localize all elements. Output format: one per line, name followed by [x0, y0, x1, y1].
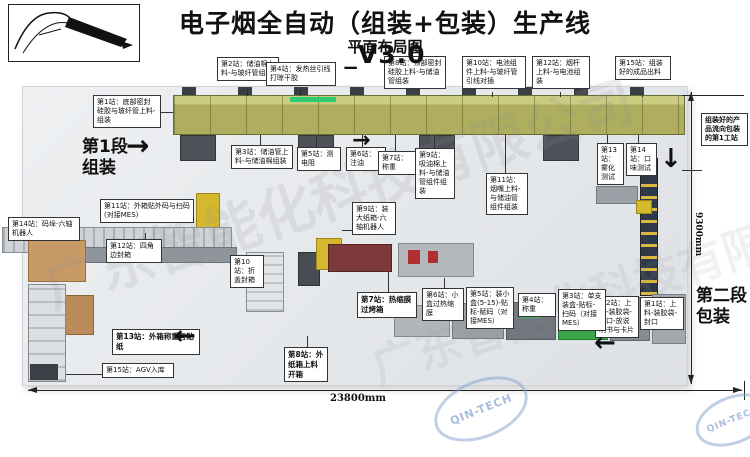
dimension-arrowhead-down: [688, 375, 694, 384]
connector-line: [66, 374, 103, 375]
inspection-red-unit: [408, 250, 420, 264]
connector-line: [607, 135, 608, 143]
connector-line: [395, 135, 396, 151]
taste-test-unit: [636, 200, 652, 214]
width-dimension-label: 23800mm: [330, 393, 386, 404]
assembly-station-label-13: 第13站：雾化测试: [597, 143, 624, 185]
hand-pen-logo: [8, 4, 140, 62]
six-axis-robot: [196, 193, 220, 231]
flow-note: 组装好的产品流向包装的第1工站: [701, 113, 748, 146]
connector-line: [638, 135, 639, 143]
packaging-station-label-7: 第7站：热缩膜过烤箱: [357, 292, 417, 318]
flow-arrow-left-icon: ←: [174, 323, 196, 349]
control-cabinet: [543, 135, 579, 161]
packaging-station-label-15: 第15站：AGV入库: [102, 363, 174, 378]
packaging-station-label-4: 第4站：称重: [518, 293, 556, 317]
inspection-red-unit: [428, 251, 438, 263]
flow-arrow-down-icon: ↓: [660, 146, 682, 172]
stage-1-line2: 组装: [82, 158, 128, 179]
dimension-arrowhead-left: [28, 387, 37, 393]
connector-line: [161, 112, 173, 113]
pen-sketch-icon: [9, 5, 137, 59]
connector-line: [560, 92, 561, 97]
stage-2-line2: 包装: [696, 307, 747, 328]
height-dimension-line: [691, 92, 692, 384]
packaging-station-label-12: 第12站：四角边封箱: [106, 239, 162, 263]
packaging-station-label-10: 第10站：折盖封箱: [230, 255, 264, 288]
flow-arrow-right-icon: →: [352, 130, 370, 152]
width-dimension-line: [28, 390, 742, 391]
qin-tech-logo-watermark: QIN-TECH: [688, 383, 750, 457]
packaging-station-label-8: 第8站：外纸箱上料开箱: [284, 347, 328, 382]
assembly-station-label-5: 第5站：测电阻: [297, 147, 341, 171]
assembly-station-label-11: 第11站：烟嘴上料-与储油管组件组装: [486, 173, 528, 215]
connector-line: [642, 93, 643, 97]
assembly-station-label-9: 第9站：吸油棉上料-与储油管组件组装: [415, 148, 455, 199]
assembly-station-label-14: 第14站：口味测试: [626, 143, 657, 176]
flow-arrow-right-icon: →: [126, 132, 149, 160]
dimension-arrowhead-up: [688, 92, 694, 101]
connector-line: [505, 135, 506, 173]
test-station-machine: [596, 186, 638, 204]
connector-line: [434, 135, 435, 148]
connector-line: [492, 92, 493, 97]
packaging-station-label-11: 第11站：外箱贴外码与扫码(对接MES): [100, 199, 194, 223]
dimension-tick: [682, 95, 744, 96]
control-cabinet: [180, 135, 216, 161]
assembly-station-label-1: 第1站：底部密封硅胶与玻纤管上料-组装: [93, 95, 161, 128]
assembly-station-label-3: 第3站：储油管上料-与储油棉组装: [231, 145, 293, 169]
packaging-station-label-5: 第5站：装小盒(5-15)-贴标-赋码（对接MES）: [466, 287, 514, 329]
page-subtitle: 平面布局图: [145, 36, 625, 57]
height-dimension-label: 9300mm: [693, 212, 703, 256]
connector-line: [342, 230, 352, 231]
assembly-line-machines: [173, 95, 685, 135]
connector-line: [300, 87, 301, 96]
vertical-transfer-conveyor: [640, 158, 658, 296]
agv-cart: [30, 364, 58, 380]
assembly-station-label-7: 第7站：称重: [378, 151, 418, 175]
pallet-stack: [28, 240, 86, 282]
flow-arrow-left-icon: ←: [594, 330, 616, 356]
connector-line: [682, 170, 702, 171]
stage-2-line1: 第二段: [696, 286, 747, 307]
packaging-station-label-9: 第9站：装大纸箱-六轴机器人: [352, 202, 396, 235]
packaging-station-label-6: 第6站：小盒过热缩膜: [422, 288, 464, 321]
connector-line: [388, 272, 389, 293]
assembly-line-green-guard: [290, 97, 336, 102]
stage-1-line1: 第1段: [82, 137, 128, 158]
packaging-station-label-14: 第14站：码垛-六轴机器人: [8, 217, 80, 241]
stage-2-title: 第二段 包装: [696, 286, 747, 329]
connector-line: [247, 88, 248, 96]
stage-1-title: 第1段 组装: [82, 137, 128, 180]
packaging-station-label-3: 第3站：单支装盒-贴标-扫码（对接MES）: [558, 289, 606, 331]
shrink-oven: [328, 244, 392, 272]
packaging-station-label-1: 第1站：上料-装胶袋-封口: [640, 297, 684, 330]
dimension-arrowhead-right: [733, 387, 742, 393]
dimension-tick: [744, 381, 745, 400]
